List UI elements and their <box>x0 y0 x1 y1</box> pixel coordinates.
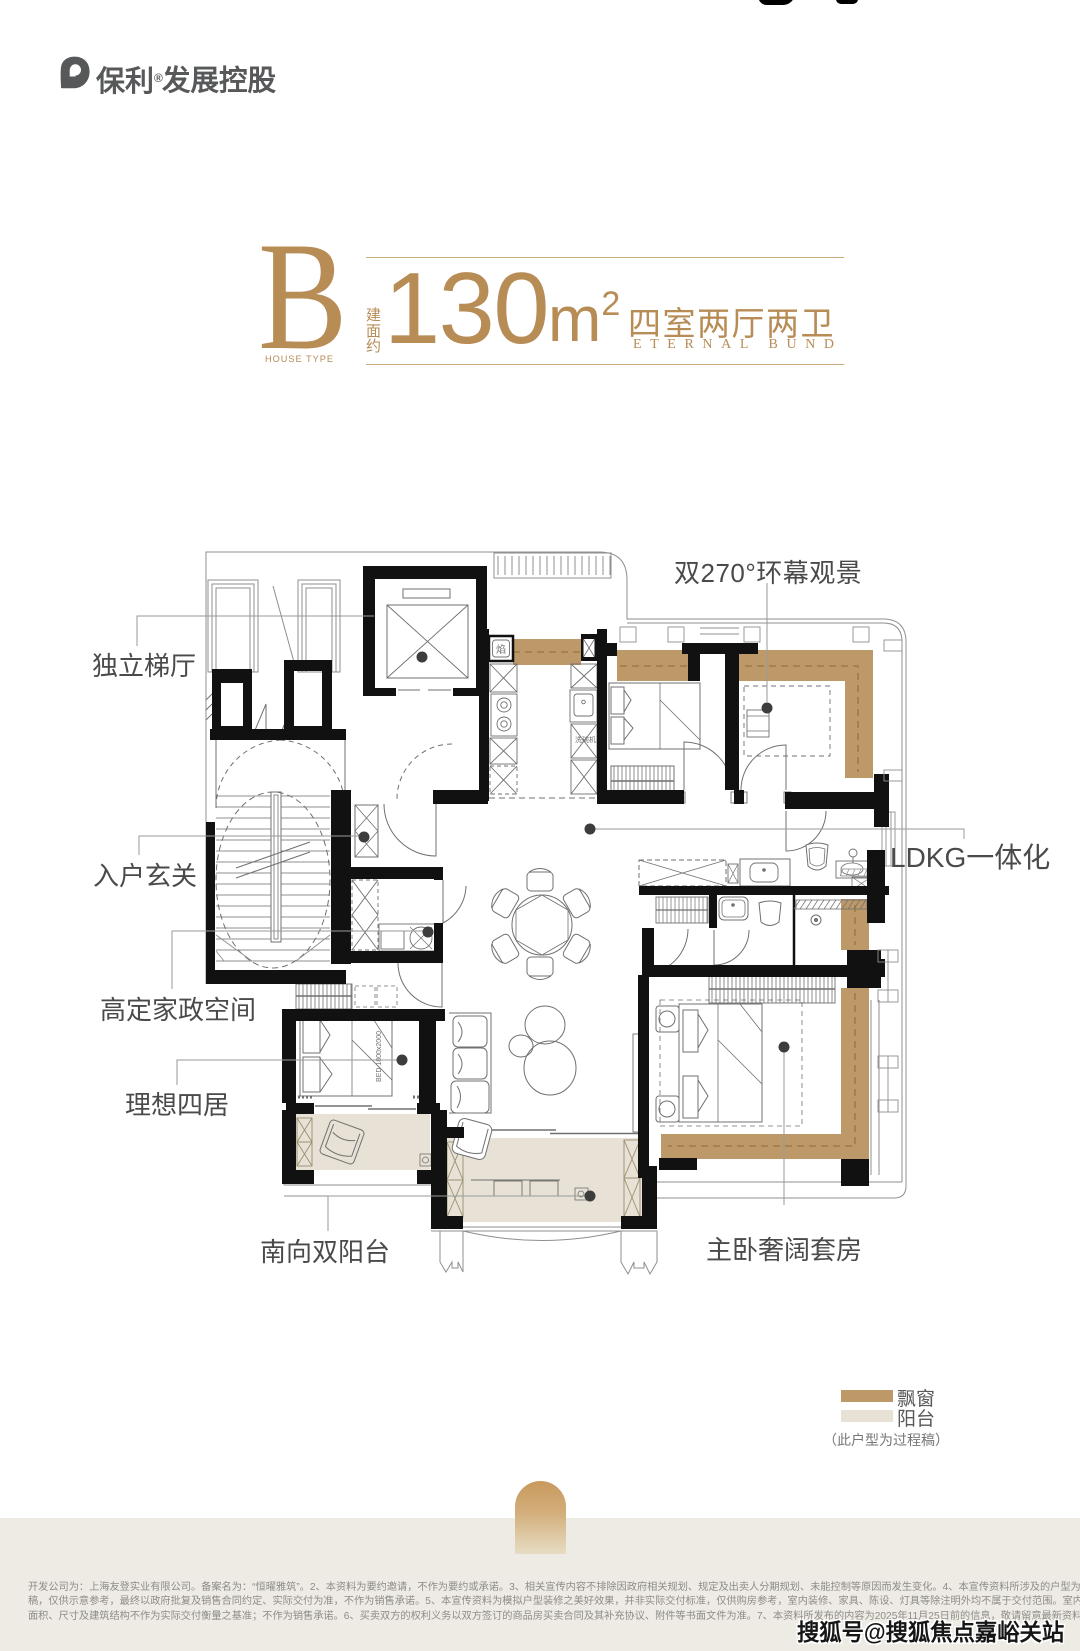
svg-text:BED 1800x2000: BED 1800x2000 <box>376 1031 383 1082</box>
svg-text:洗碗机: 洗碗机 <box>575 735 596 744</box>
svg-text:焰: 焰 <box>496 643 506 656</box>
